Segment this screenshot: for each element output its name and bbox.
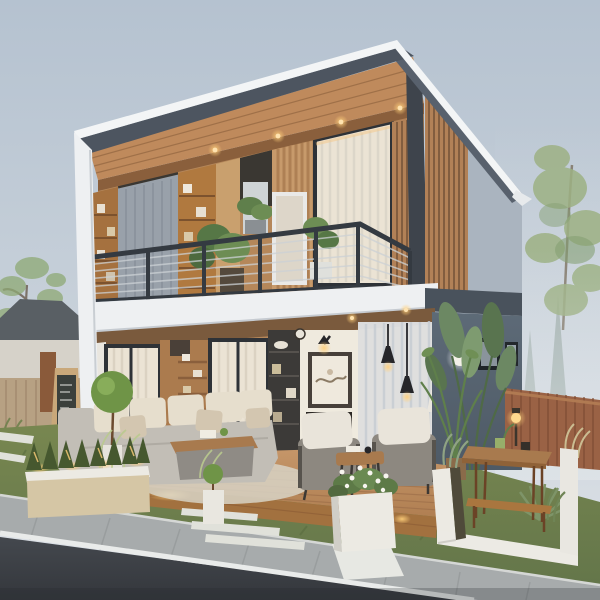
- flower-planter: [328, 466, 398, 553]
- upper-glass-door: [315, 122, 392, 285]
- wall-art: [308, 352, 352, 408]
- wall-clock: [295, 329, 305, 339]
- small-deck-planter: [203, 464, 224, 524]
- house-render-scene: [0, 0, 600, 600]
